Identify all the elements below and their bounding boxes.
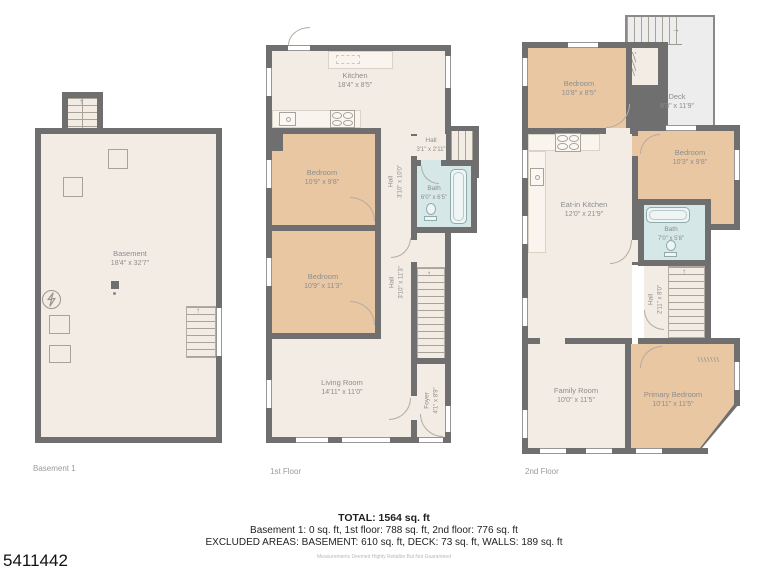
window <box>734 362 740 390</box>
floor-label-1st: 1st Floor <box>270 467 301 476</box>
window <box>522 216 528 244</box>
door-gap <box>288 45 310 51</box>
room-dims: 10'3" x 9'8" <box>650 158 730 167</box>
wall <box>471 160 477 233</box>
floorplan-sheet: ↑ ↑ Basement 18'4" x 32'7" Basement 1 <box>0 0 768 576</box>
room-name: Hall <box>648 269 657 329</box>
burner <box>557 143 568 150</box>
room-name: Family Room <box>536 386 616 396</box>
door-gap <box>606 128 630 134</box>
tub-inner <box>649 210 687 220</box>
excluded-areas-text: EXCLUDED AREAS: BASEMENT: 610 sq. ft, DE… <box>0 537 768 550</box>
room-dims: 6'0" x 6'5" <box>412 194 456 202</box>
window <box>636 448 662 454</box>
wall <box>625 344 631 448</box>
window <box>522 298 528 326</box>
room-label-hall-small: Hall 3'1" x 2'11" <box>411 137 451 154</box>
room-label-bedroom-a: Bedroom 10'9" x 9'8" <box>282 168 362 188</box>
room-label-foyer: Foyer 4'1" x 8'9" <box>424 370 441 430</box>
window <box>540 448 566 454</box>
stairs-2f <box>668 266 705 338</box>
room-dims: 2'11" x 8'0" <box>656 269 664 329</box>
room-dims: 10'11" x 11'5" <box>633 400 713 409</box>
room-label-bath-2f: Bath 7'0" x 5'8" <box>649 226 693 243</box>
toilet-bowl <box>426 203 436 215</box>
room-label-basement: Basement 18'4" x 32'7" <box>90 249 170 269</box>
door-gap <box>216 308 222 356</box>
room-dims: 14'11" x 11'0" <box>302 388 382 397</box>
toilet-icon <box>424 216 437 221</box>
room-label-primary: Primary Bedroom 10'11" x 11'5" <box>633 390 713 410</box>
door-swing-arc <box>288 27 310 45</box>
radiator-icon <box>632 52 636 76</box>
room-label-bedroom-2fb: Bedroom 10'3" x 9'8" <box>650 148 730 168</box>
window <box>266 380 272 408</box>
furnace-icon <box>111 281 119 289</box>
room-label-bedroom-b: Bedroom 10'9" x 11'3" <box>283 272 363 292</box>
basement-stairs <box>186 306 216 358</box>
stove-icon <box>555 133 581 152</box>
floor-label-basement: Basement 1 <box>33 464 76 473</box>
room-label-hall-vert-a: Hall 3'10" x 10'0" <box>388 151 405 211</box>
room-name: Hall <box>388 151 397 211</box>
closet-rod-icon <box>697 357 719 362</box>
room-label-kitchen: Kitchen 18'4" x 8'5" <box>315 71 395 91</box>
wall <box>266 333 381 339</box>
stairs-up-arrow-icon: ↑ <box>79 98 83 106</box>
burner <box>332 120 342 127</box>
wall-notch <box>266 134 283 151</box>
room-dims: 3'10" x 10'0" <box>396 151 404 211</box>
door-gap <box>411 240 417 262</box>
sink-drain <box>535 175 540 180</box>
room-label-bedroom-2fa: Bedroom 10'8" x 8'5" <box>539 79 619 99</box>
total-area-text: TOTAL: 1564 sq. ft <box>0 512 768 525</box>
room-dims: 10'8" x 8'5" <box>539 89 619 98</box>
bathtub-icon <box>646 207 690 223</box>
room-dims: 8'3" x 11'9" <box>637 102 717 111</box>
room-name: Deck <box>637 92 717 102</box>
room-dims: 3'10" x 11'3" <box>397 252 405 312</box>
window <box>522 150 528 178</box>
room-dims: 7'0" x 5'8" <box>649 235 693 243</box>
room-dims: 10'9" x 11'3" <box>283 282 363 291</box>
window <box>522 58 528 86</box>
floor-breakdown-text: Basement 1: 0 sq. ft, 1st floor: 788 sq.… <box>0 525 768 538</box>
room-name: Basement <box>90 249 170 259</box>
room-name: Bath <box>412 185 456 194</box>
room-name: Bedroom <box>539 79 619 89</box>
utility-box <box>63 177 83 197</box>
window <box>666 125 696 131</box>
room-dims: 18'4" x 8'5" <box>315 81 395 90</box>
room-name: Bedroom <box>650 148 730 158</box>
wall <box>638 338 740 344</box>
utility-box <box>49 345 71 363</box>
sink-drain <box>286 117 291 122</box>
utility-box <box>49 315 70 334</box>
floor-label-2nd: 2nd Floor <box>525 467 559 476</box>
room-name: Hall <box>411 137 451 146</box>
room-name: Foyer <box>424 370 433 430</box>
wall <box>375 128 381 339</box>
room-name: Bedroom <box>283 272 363 282</box>
stairs-arrow-icon: → <box>672 26 680 34</box>
window <box>266 258 272 286</box>
burner <box>343 120 353 127</box>
furnace-dot-icon <box>113 292 116 295</box>
room-dims: 3'1" x 2'11" <box>411 146 451 154</box>
window <box>266 68 272 96</box>
room-dims: 18'4" x 32'7" <box>90 259 170 268</box>
wall <box>411 227 477 233</box>
utility-box <box>108 149 128 169</box>
window <box>568 42 598 48</box>
burner <box>569 135 580 142</box>
stairs-up-arrow-icon: ↑ <box>427 270 431 278</box>
window <box>522 410 528 438</box>
stove-icon <box>330 110 355 128</box>
window <box>342 437 390 443</box>
room-name: Eat-in Kitchen <box>544 200 624 210</box>
room-name: Hall <box>389 252 398 312</box>
burner <box>343 112 353 119</box>
room-name: Primary Bedroom <box>633 390 713 400</box>
window <box>296 437 328 443</box>
entry-door-gap <box>419 437 443 443</box>
room-label-hall-vert-b: Hall 3'10" x 11'3" <box>389 252 406 312</box>
sink-icon <box>530 168 544 186</box>
window <box>734 150 740 180</box>
room-dims: 10'0" x 11'5" <box>536 396 616 405</box>
stairs-1f-main <box>417 267 445 362</box>
disclaimer-text: Measurements Deemed Highly Reliable But … <box>0 554 768 560</box>
listing-number: 5411442 <box>3 551 68 571</box>
burner <box>332 112 342 119</box>
room-label-deck: Deck 8'3" x 11'9" <box>637 92 717 112</box>
window <box>586 448 612 454</box>
room-name: Kitchen <box>315 71 395 81</box>
window <box>445 56 451 88</box>
room-label-family: Family Room 10'0" x 11'5" <box>536 386 616 406</box>
room-label-eat-in-kitchen: Eat-in Kitchen 12'0" x 21'9" <box>544 200 624 220</box>
wall <box>705 230 711 338</box>
burner <box>557 135 568 142</box>
room-label-living: Living Room 14'11" x 11'0" <box>302 378 382 398</box>
window <box>266 160 272 188</box>
area-summary: TOTAL: 1564 sq. ft Basement 1: 0 sq. ft,… <box>0 512 768 560</box>
sink-icon <box>279 112 296 126</box>
side-door-gap <box>445 406 451 432</box>
room-name: Bath <box>649 226 693 235</box>
door-gap <box>632 136 638 156</box>
room-name: Living Room <box>302 378 382 388</box>
room-dims: 4'1" x 8'9" <box>432 370 440 430</box>
counter-detail <box>336 55 360 64</box>
electric-panel-icon <box>42 290 61 309</box>
stairs-up-arrow-icon: ↑ <box>682 268 686 276</box>
room-label-hall-2f: Hall 2'11" x 8'0" <box>648 269 665 329</box>
room-dims: 10'9" x 9'8" <box>282 178 362 187</box>
burner <box>569 143 580 150</box>
toilet-icon <box>664 252 677 257</box>
room-label-bath-1f: Bath 6'0" x 6'5" <box>412 185 456 202</box>
room-name: Bedroom <box>282 168 362 178</box>
room-dims: 12'0" x 21'9" <box>544 210 624 219</box>
stairs-up-arrow-icon: ↑ <box>196 307 200 315</box>
